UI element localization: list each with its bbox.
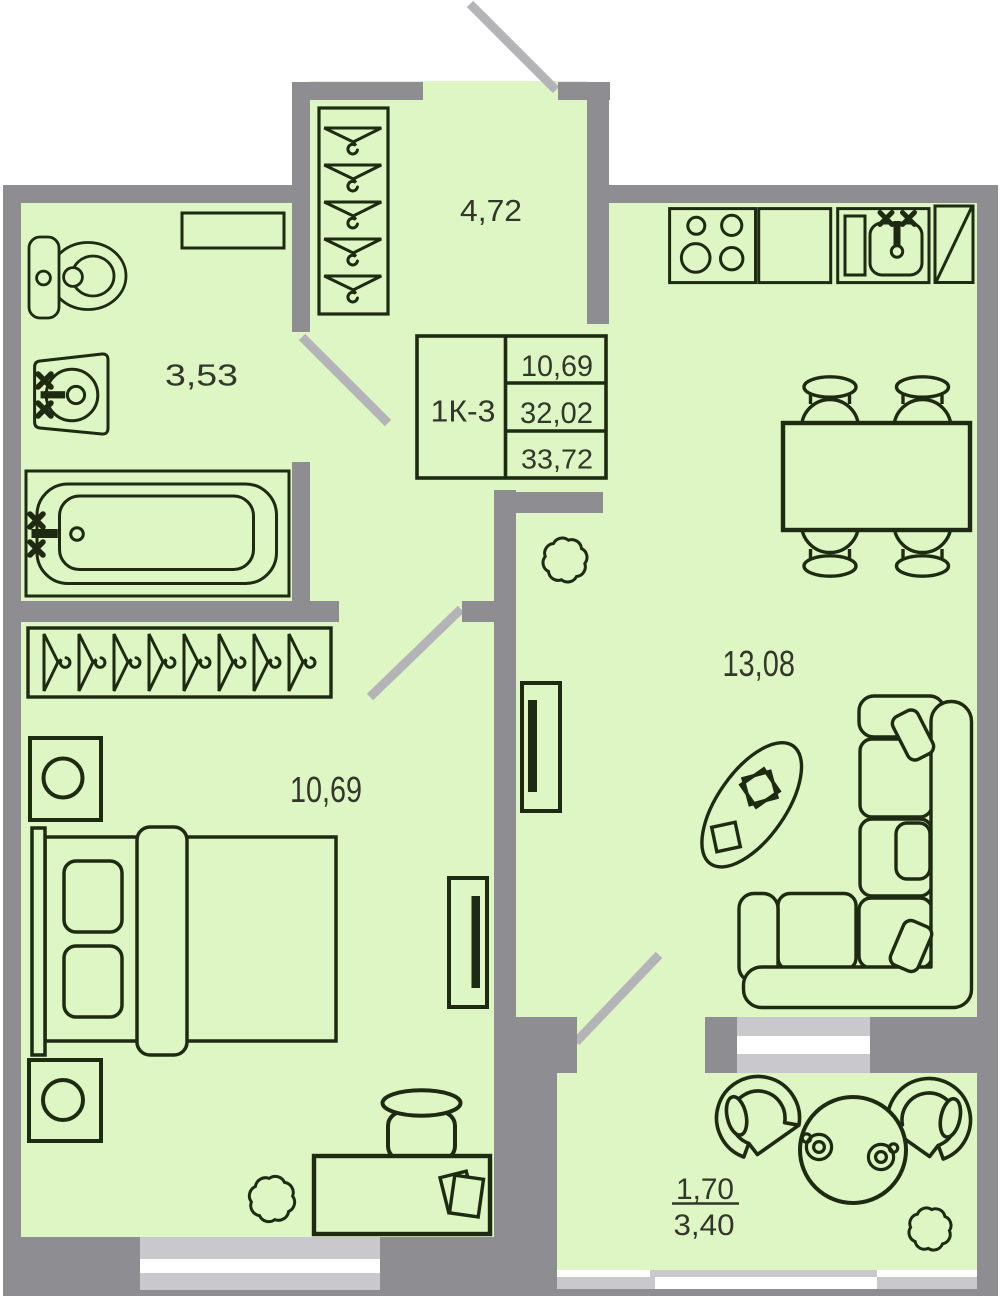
svg-text:10,69: 10,69 xyxy=(521,350,593,383)
svg-text:1,70: 1,70 xyxy=(676,1173,734,1206)
svg-text:13,08: 13,08 xyxy=(722,643,795,684)
svg-text:32,02: 32,02 xyxy=(520,397,593,430)
svg-text:3,53: 3,53 xyxy=(165,358,238,393)
svg-text:10,69: 10,69 xyxy=(290,769,362,810)
svg-text:3,40: 3,40 xyxy=(674,1209,735,1242)
svg-text:4,72: 4,72 xyxy=(460,193,522,228)
svg-text:1К-3: 1К-3 xyxy=(431,394,496,429)
svg-text:33,72: 33,72 xyxy=(521,444,593,475)
